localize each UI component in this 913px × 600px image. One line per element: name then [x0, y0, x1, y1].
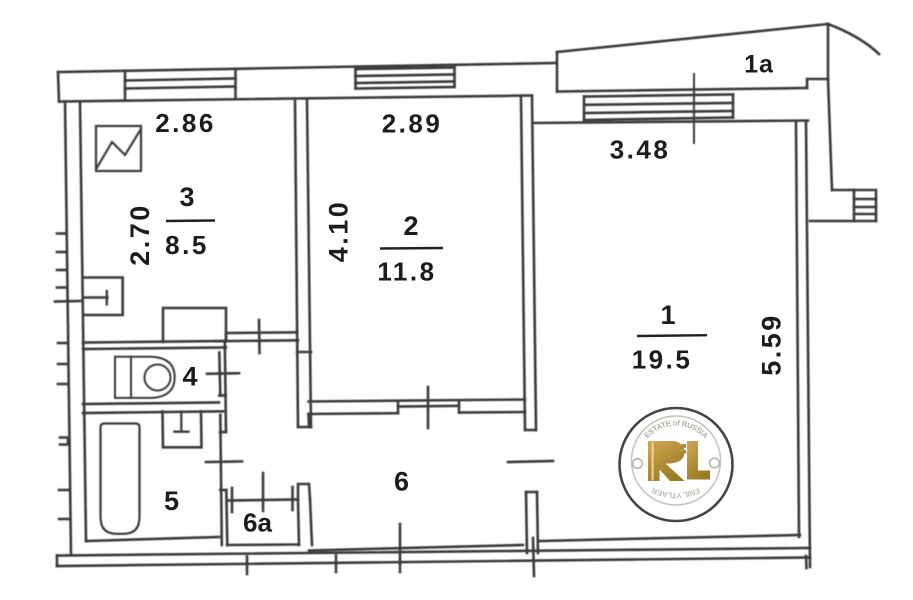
svg-text:1: 1 — [660, 300, 675, 330]
svg-text:4: 4 — [182, 362, 197, 392]
svg-text:6a: 6a — [243, 508, 272, 538]
svg-text:1a: 1a — [744, 51, 774, 79]
svg-text:2.70: 2.70 — [125, 203, 155, 266]
svg-text:2.86: 2.86 — [155, 108, 216, 138]
svg-text:2: 2 — [403, 211, 418, 241]
svg-text:5: 5 — [164, 486, 179, 516]
svg-text:4.10: 4.10 — [324, 200, 354, 263]
svg-text:3: 3 — [179, 182, 194, 212]
svg-text:2.89: 2.89 — [382, 109, 443, 139]
svg-text:3.48: 3.48 — [610, 135, 671, 165]
svg-text:5.59: 5.59 — [757, 313, 787, 376]
svg-text:8.5: 8.5 — [165, 230, 209, 260]
svg-text:19.5: 19.5 — [632, 345, 693, 375]
svg-text:6: 6 — [394, 467, 409, 497]
svg-text:11.8: 11.8 — [377, 257, 436, 287]
